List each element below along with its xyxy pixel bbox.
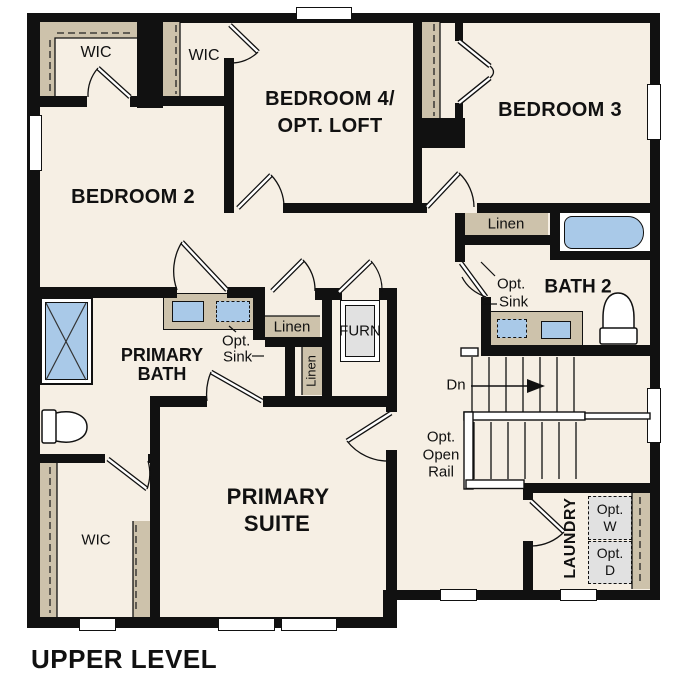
room-label-laundry: LAUNDRY xyxy=(563,497,579,578)
room-label-bedroom2: BEDROOM 2 xyxy=(71,187,195,207)
window-bedroom2 xyxy=(29,115,42,171)
window-hall xyxy=(440,589,477,601)
window-suite-2 xyxy=(281,618,337,631)
room-label-primary-suite-line1: PRIMARY xyxy=(227,486,330,508)
bath2-opt-sink xyxy=(497,319,527,338)
window-wic-primary xyxy=(79,618,116,631)
wic-primary-shelf-left xyxy=(40,463,57,617)
wall-suite-east xyxy=(386,450,397,628)
closet-label-linen-hall2: Linen xyxy=(305,355,318,387)
annotation-primary-opt: Opt. xyxy=(222,334,250,349)
wall-suite-west xyxy=(150,396,160,617)
wall-vanity-east xyxy=(253,290,265,340)
closet-label-wic2: WIC xyxy=(188,48,219,64)
wall-chase xyxy=(137,22,163,108)
primary-opt-sink xyxy=(216,301,250,322)
bedroom3-closet-shelf xyxy=(422,22,440,118)
annotation-opt-dryer-line1: Opt. xyxy=(597,546,623,560)
wall-segment xyxy=(40,96,87,107)
room-label-primary-bath-line1: PRIMARY xyxy=(121,346,203,364)
closet-label-linen-hall: Linen xyxy=(274,320,311,335)
wall-tub-south xyxy=(550,250,650,260)
wic-primary-shelf-right xyxy=(133,521,150,617)
shower-pan xyxy=(45,302,88,380)
annotation-open-rail-line2: Open xyxy=(423,448,460,463)
wall-bath2-south xyxy=(481,345,652,356)
wall-bedroom2-east xyxy=(224,58,234,213)
window-bedroom4 xyxy=(296,7,352,20)
annotation-opt-washer-line2: W xyxy=(603,519,616,533)
wall-suite-north-b xyxy=(263,396,397,407)
wall-linen-bath2-south xyxy=(455,235,558,245)
wall-bedroom4-south xyxy=(283,203,420,213)
wall-furn-west xyxy=(322,290,332,397)
plan-title: UPPER LEVEL xyxy=(31,644,217,675)
bathtub xyxy=(564,216,644,249)
annotation-open-rail-line1: Opt. xyxy=(427,430,455,445)
wall-bath2-west xyxy=(481,297,491,347)
window-stair-landing xyxy=(647,388,661,443)
annotation-primary-sink: Sink xyxy=(223,350,252,365)
room-label-primary-suite-line2: SUITE xyxy=(244,513,310,535)
annotation-opt-washer-line1: Opt. xyxy=(597,502,623,516)
laundry-shelf xyxy=(632,493,650,589)
closet-label-linen-bath2: Linen xyxy=(488,217,525,232)
wall-bedroom3-south xyxy=(477,203,652,213)
primary-sink xyxy=(172,301,204,322)
wall-tub-west xyxy=(550,213,560,253)
room-label-bedroom4-line1: BEDROOM 4/ xyxy=(265,89,395,109)
room-label-primary-bath-line2: BATH xyxy=(138,365,187,383)
wall-segment xyxy=(422,203,427,213)
wall-segment xyxy=(163,96,226,106)
wall-laundry-west-a xyxy=(523,483,533,500)
window-bedroom3 xyxy=(647,84,661,140)
closet-label-wic-primary: WIC xyxy=(81,533,110,548)
wall-jamb xyxy=(148,454,160,463)
closet-label-wic1: WIC xyxy=(80,45,111,61)
window-suite-1 xyxy=(218,618,275,631)
closet-label-furnace: FURN xyxy=(339,324,381,339)
wall-linen2-west xyxy=(285,347,295,397)
annotation-bath2-sink: Sink xyxy=(499,295,528,310)
wall-wic-primary-north xyxy=(40,454,105,463)
room-label-bath2: BATH 2 xyxy=(544,278,611,297)
annotation-open-rail-line3: Rail xyxy=(428,465,454,480)
wall-laundry-north xyxy=(523,483,652,493)
bath2-sink xyxy=(541,321,571,339)
wall-suite-east-stub xyxy=(386,396,397,412)
wic1-shelf-left xyxy=(40,22,55,98)
wall-furn-east xyxy=(387,288,397,407)
wall-laundry-west-b xyxy=(523,541,533,591)
window-laundry xyxy=(560,589,597,601)
wic2-shelf-left xyxy=(163,22,180,96)
annotation-bath2-opt: Opt. xyxy=(497,277,525,292)
floor-plan: WIC WIC BEDROOM 4/ OPT. LOFT BEDROOM 3 B… xyxy=(0,0,687,687)
wall-linen-mid xyxy=(265,337,322,347)
room-label-bedroom4-line2: OPT. LOFT xyxy=(278,116,383,136)
wall-segment xyxy=(130,96,137,107)
wall-jamb xyxy=(455,22,463,41)
annotation-stairs-down: Dn xyxy=(446,378,465,393)
wall-jamb xyxy=(455,103,463,120)
room-label-bedroom3: BEDROOM 3 xyxy=(498,100,622,120)
wall-chase-bedroom3 xyxy=(413,118,465,148)
annotation-opt-dryer-line2: D xyxy=(605,563,615,577)
